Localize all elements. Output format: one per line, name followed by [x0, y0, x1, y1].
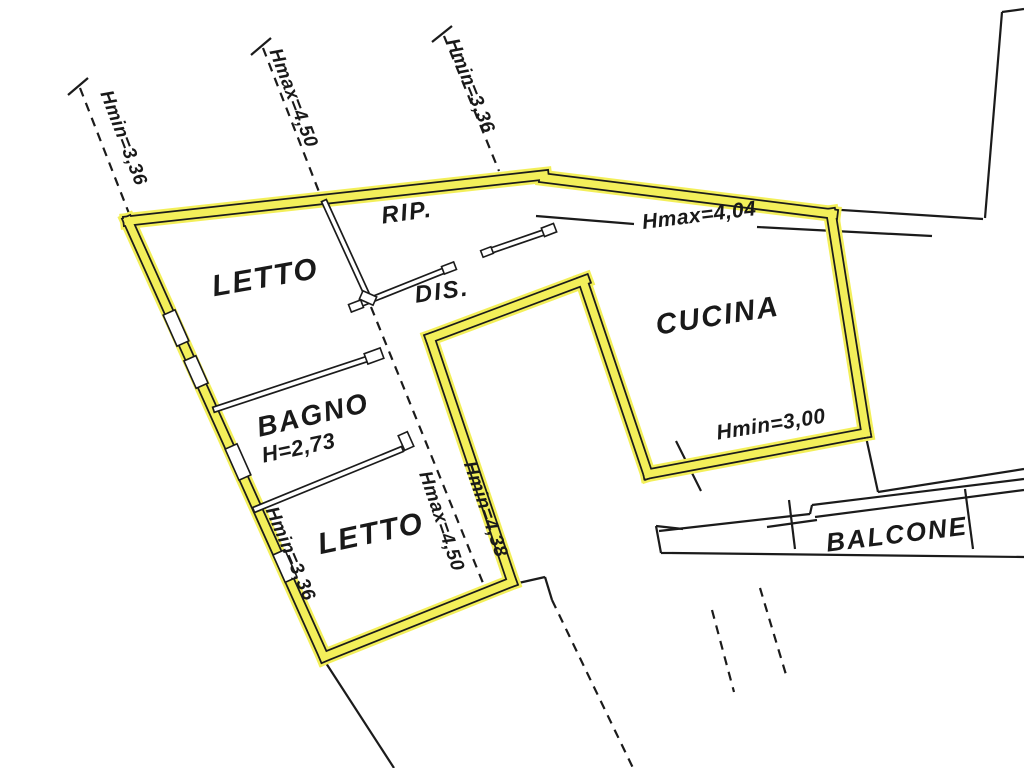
jamb-dis-west [348, 300, 363, 312]
wall-south-kitchen [648, 433, 866, 474]
balcony-step [810, 505, 812, 514]
tick-section-1 [68, 78, 88, 95]
annotation-hmin-top-mid: Hmin=3,36 [442, 36, 499, 137]
outline-inner [757, 227, 932, 236]
outline-adjacent-west [985, 12, 1002, 218]
room-label-rip: RIP. [380, 196, 435, 230]
annotation-hmin-top-left: Hmin=3,36 [95, 88, 150, 189]
labels-layer: LETTO RIP. DIS. CUCINA BAGNO H=2,73 LETT… [95, 36, 969, 604]
outline-kitchen-corner-drop [866, 437, 878, 492]
outline-adjacent-south [826, 209, 983, 219]
jamb-corridor-west [481, 247, 494, 257]
section-lines-layer [80, 36, 787, 768]
partition-corridor [487, 231, 548, 252]
outline-south-west [324, 660, 394, 768]
annotation-hmax-top: Hmax=4,50 [265, 46, 322, 151]
balcony-bracket-a [656, 526, 683, 529]
wall-east-kitchen [831, 213, 866, 433]
outline-south-mid [552, 600, 633, 768]
wall-top-west [128, 175, 544, 221]
room-label-letto-2: LETTO [315, 506, 427, 561]
room-label-balcone: BALCONE [824, 510, 969, 557]
balcony-parapet-top [812, 479, 1024, 505]
outline-adjacent-top [1002, 9, 1024, 12]
wall-court-east [583, 281, 648, 474]
below-balcony-1 [760, 588, 787, 678]
below-balcony-2 [712, 610, 734, 692]
jamb-corridor-east [541, 223, 556, 236]
room-label-letto-1: LETTO [209, 252, 321, 303]
room-label-cucina: CUCINA [653, 291, 781, 342]
wall-south-letto2 [324, 582, 512, 657]
balcony-parapet-bottom [815, 490, 1024, 517]
jamb-dis-east [441, 262, 456, 274]
floor-plan-canvas: LETTO RIP. DIS. CUCINA BAGNO H=2,73 LETT… [0, 0, 1024, 768]
letto2-door-b [545, 577, 552, 600]
partition-letto-rip [325, 203, 368, 297]
knob-bagno-north [364, 348, 384, 364]
leader-hmax-404 [536, 216, 634, 224]
window-1 [163, 310, 189, 346]
